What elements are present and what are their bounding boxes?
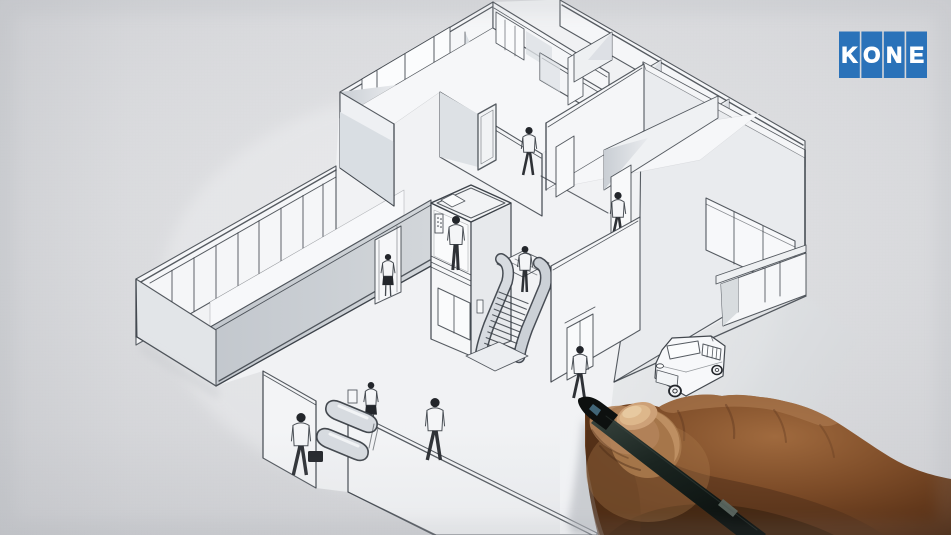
svg-text:K: K	[841, 43, 857, 68]
svg-text:N: N	[886, 43, 902, 68]
svg-text:E: E	[909, 43, 924, 68]
svg-text:O: O	[863, 43, 880, 68]
